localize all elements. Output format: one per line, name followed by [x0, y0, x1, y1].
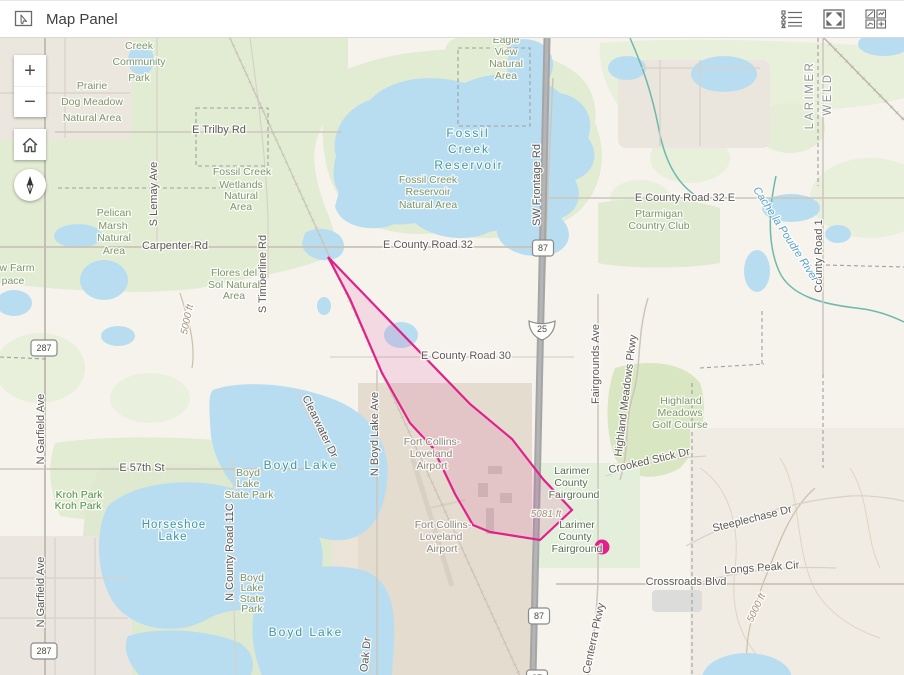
map-label: Natural Area	[399, 199, 458, 211]
map-label: Creek	[448, 142, 490, 156]
svg-text:87: 87	[538, 243, 548, 253]
map-label: E Trilby Rd	[192, 124, 246, 136]
map-label: Natural Area	[63, 112, 122, 124]
svg-text:25: 25	[537, 324, 547, 334]
map-label: Park	[241, 603, 263, 615]
compass-needle-icon	[20, 175, 40, 195]
map-label: Fort Collins-	[415, 519, 472, 531]
map-view[interactable]: E Trilby RdCarpenter RdE County Road 32E…	[0, 38, 904, 675]
us-route-shield: 87	[529, 608, 550, 624]
map-label: Highland	[660, 395, 702, 407]
map-label: Area	[223, 290, 245, 302]
map-label: N Garfield Ave	[35, 557, 47, 628]
panel-title: Map Panel	[46, 11, 118, 28]
map-label: Natural	[489, 58, 523, 70]
zoom-out-button[interactable]: −	[14, 86, 46, 117]
map-label: LARIMER	[804, 61, 816, 130]
map-label: Fossil Creek	[399, 174, 458, 186]
map-label: Fairgrounds Ave	[590, 324, 602, 404]
map-label: Country Club	[628, 220, 689, 232]
map-label: Creek	[125, 40, 154, 52]
map-label: 5081 ft	[531, 509, 563, 520]
map-label: County	[558, 531, 592, 543]
map-label: Boyd Lake	[264, 458, 339, 472]
map-label: Fairground	[552, 543, 603, 555]
map-label: Kroh Park	[55, 500, 102, 512]
map-panel-window: Map Panel	[0, 0, 904, 675]
map-label: Golf Course	[652, 419, 708, 431]
map-label: Fossil	[446, 126, 489, 140]
map-label: Crossroads Blvd	[646, 576, 727, 588]
map-panel-icon	[14, 9, 34, 29]
map-label: Pelican	[97, 207, 132, 219]
map-label: Natural	[97, 232, 131, 244]
expand-icon[interactable]	[820, 5, 848, 33]
map-label: Community	[112, 56, 166, 68]
map-label: County	[554, 477, 588, 489]
map-label: Loveland	[420, 531, 463, 543]
legend-list-icon[interactable]	[778, 5, 806, 33]
map-label: Airport	[417, 460, 448, 472]
zoom-in-button[interactable]: +	[14, 55, 46, 86]
map-label: Flores del	[211, 267, 257, 279]
map-label: Airport	[427, 543, 458, 555]
map-label: Meadows	[658, 407, 703, 419]
map-label: S Timberline Rd	[257, 235, 269, 313]
map-label: State Park	[224, 489, 274, 501]
map-label: N Garfield Ave	[35, 394, 47, 465]
map-label: SW Frontage Rd	[531, 144, 543, 226]
map-label: pace	[2, 275, 25, 287]
map-label: Reservoir	[434, 158, 503, 172]
map-label: Park	[128, 72, 150, 84]
map-label: View	[495, 46, 518, 58]
map-label: S Lemay Ave	[148, 162, 160, 227]
home-icon	[21, 136, 39, 154]
map-label: Area	[230, 201, 252, 213]
map-label: Eagle	[493, 38, 520, 46]
map-label: N Boyd Lake Ave	[369, 392, 381, 476]
widget-grid-icon[interactable]	[862, 5, 890, 33]
map-label: Larimer	[554, 465, 590, 477]
map-label: WELD	[822, 72, 834, 115]
map-label: Fairground	[549, 489, 600, 501]
map-label: Reservoir	[406, 186, 451, 198]
us-route-shield: 87	[527, 670, 548, 675]
map-label: County Road 1	[813, 219, 825, 292]
map-label: Loveland	[410, 448, 453, 460]
svg-text:87: 87	[534, 611, 544, 621]
zoom-control: + −	[14, 55, 46, 117]
map-label: E County Road 32 E	[635, 192, 735, 204]
us-route-shield: 87	[533, 240, 554, 256]
map-label: w Farm	[0, 262, 35, 274]
map-label: E County Road 32	[383, 239, 473, 251]
map-label: Horseshoe	[142, 519, 207, 531]
map-label: Area	[495, 70, 517, 82]
map-label: Dog Meadow	[61, 96, 123, 108]
map-label: Fort Collins-	[404, 436, 461, 448]
map-label: Larimer	[559, 519, 595, 531]
map-label: E County Road 30	[421, 350, 511, 362]
compass-button[interactable]	[14, 169, 46, 201]
map-label: Carpenter Rd	[142, 240, 208, 252]
us-route-shield: 287	[31, 643, 57, 659]
svg-text:287: 287	[36, 646, 51, 656]
map-label: N County Road 11C	[224, 503, 236, 601]
map-label: Ptarmigan	[635, 208, 683, 220]
home-button[interactable]	[14, 129, 46, 160]
svg-text:287: 287	[36, 343, 51, 353]
map-label: E 57th St	[119, 462, 164, 474]
map-label: Fossil Creek	[213, 166, 272, 178]
map-label: Area	[103, 245, 125, 257]
us-route-shield: 287	[31, 340, 57, 356]
map-label: Prairie	[77, 80, 108, 92]
map-label: Lake	[159, 531, 188, 543]
map-label: Boyd Lake	[269, 625, 344, 639]
panel-header: Map Panel	[0, 1, 904, 38]
map-label: Marsh	[98, 220, 127, 232]
map-canvas[interactable]: E Trilby RdCarpenter RdE County Road 32E…	[0, 38, 904, 675]
